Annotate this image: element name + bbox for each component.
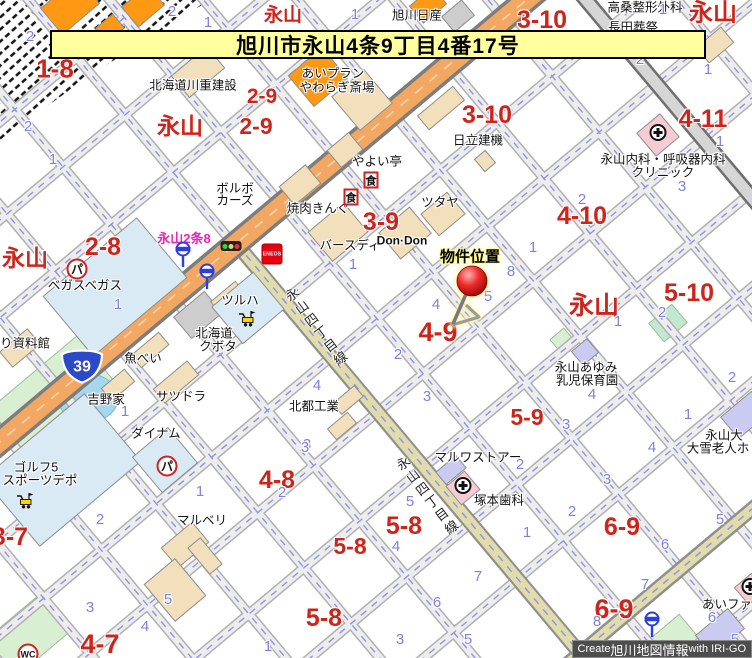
bus-stop-icon bbox=[198, 263, 216, 295]
credit-main: 旭川地図情報 bbox=[611, 640, 689, 658]
hospital-cross-icon bbox=[739, 576, 752, 603]
credit-prefix: Create bbox=[578, 643, 611, 655]
wc-icon: WC bbox=[18, 644, 39, 658]
parking-icon: パ bbox=[67, 259, 88, 280]
address-banner: 旭川市永山4条9丁目4番17号 bbox=[50, 30, 706, 59]
traffic-light-icon bbox=[221, 241, 242, 251]
gas-station-icon: ENEOS bbox=[262, 244, 283, 265]
bus-stop-icon bbox=[174, 241, 192, 273]
restaurant-icon: 食 bbox=[344, 189, 359, 206]
svg-text:39: 39 bbox=[73, 359, 91, 376]
pin-label: 物件位置 bbox=[440, 246, 500, 267]
shopping-cart-icon bbox=[15, 492, 35, 514]
map-icons-layer: ENEOS食食パパWC 39 bbox=[0, 0, 752, 658]
shopping-cart-icon bbox=[237, 310, 257, 332]
hospital-cross-icon bbox=[452, 475, 474, 502]
credit-suffix: with IRI-GO bbox=[689, 643, 746, 655]
route-39-shield: 39 bbox=[58, 347, 106, 392]
restaurant-icon: 食 bbox=[364, 172, 379, 189]
hospital-cross-icon bbox=[647, 122, 669, 149]
parking-icon: パ bbox=[157, 456, 178, 477]
map-credit: Create 旭川地図情報 with IRI-GO bbox=[572, 640, 752, 658]
map-app: 永山永山1-82-9永山2-93-103-104-114-10永山2-83-94… bbox=[0, 0, 752, 658]
bus-stop-icon bbox=[643, 611, 661, 643]
